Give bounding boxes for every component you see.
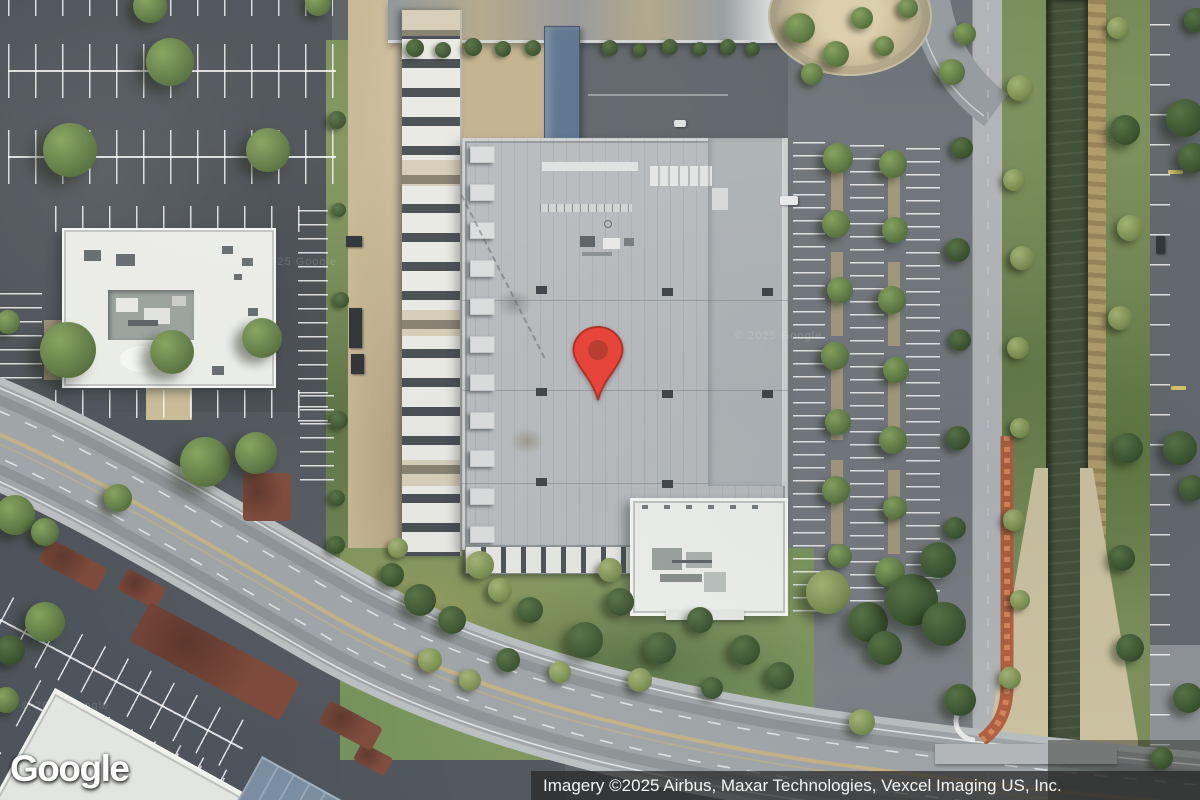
tree [882,217,908,243]
tree [602,40,618,56]
tree [459,669,481,691]
tree [849,709,875,735]
annex-building-roof [630,498,788,616]
tree [1107,17,1129,39]
tree [801,63,823,85]
roof-structure [648,166,712,186]
rooftop-pipe [128,320,158,326]
imagery-watermark: © 2025 Google [250,256,337,268]
tree [330,411,348,429]
tree [785,13,815,43]
tree [946,238,970,262]
tree [567,622,603,658]
parapet-dot [642,505,648,509]
tree [1010,418,1030,438]
roof-vent [662,390,673,398]
tree [332,203,346,217]
tree [549,661,571,683]
tree [1003,509,1025,531]
equipment-unit [672,560,712,563]
tree [922,602,966,646]
tree [944,517,966,539]
rooftop-unit [116,252,135,266]
tree [944,684,976,716]
roof-machine [624,238,634,246]
tree [1010,246,1034,270]
tree [242,318,282,358]
roof-vent [662,480,673,488]
wheel-stop [1168,170,1183,174]
roof-vent [662,288,673,296]
tree [1179,475,1200,501]
tree [466,551,494,579]
tree [823,41,849,67]
tree [1116,634,1144,662]
tree [495,41,511,57]
dumpster [349,308,362,348]
roof-stain [510,428,544,454]
tree [598,558,622,582]
parapet-dot [752,505,758,509]
equipment-unit [704,572,726,592]
tree [388,538,408,558]
tree [438,606,466,634]
tree [104,484,132,512]
attribution-text: Imagery ©2025 Airbus, Maxar Technologies… [543,776,1062,795]
parapet-dot [686,505,692,509]
rooftop-unit [222,244,233,254]
rooftop-unit [116,298,138,312]
roof-machine [580,236,595,247]
tree [920,542,956,578]
tree [525,40,541,56]
tree [1003,169,1025,191]
tree [879,150,907,178]
roof-hatch [470,146,495,163]
tree [822,210,850,238]
tree [31,518,59,546]
tree [951,137,973,159]
car [674,120,686,127]
roof-hatch [470,336,495,353]
roof-hatch [470,488,495,505]
tree [327,536,345,554]
tree [1163,431,1197,465]
roof-machine [603,238,620,249]
tree [1166,99,1200,137]
mechanical-units-west [402,10,462,556]
tree [1173,683,1200,713]
tree [40,322,96,378]
tree [825,409,851,435]
tree [806,570,850,614]
tree [939,59,965,85]
roof-vent [536,286,547,294]
tree [701,677,723,699]
tree [730,635,760,665]
tree [946,426,970,450]
tree [949,329,971,351]
tree [517,597,543,623]
tree [435,42,451,58]
tree [851,7,873,29]
tree [43,123,97,177]
tree [822,476,850,504]
map-pin-icon [570,325,626,403]
map-canvas[interactable]: © 2025 Google© 2025 Google© 2025 Google … [0,0,1200,800]
roof-catwalk [540,204,632,212]
rooftop-unit [248,306,258,316]
satellite-imagery: © 2025 Google© 2025 Google© 2025 Google [0,0,1200,800]
mulch-island [243,473,291,521]
tree [883,357,909,383]
tree [874,36,894,56]
tree [766,662,794,690]
tree [464,38,482,56]
tree [1007,337,1029,359]
tree [333,292,349,308]
tree [878,286,906,314]
roof-structure [712,188,728,210]
parapet-dot [664,505,670,509]
tree [488,578,512,602]
attribution-bar: Imagery ©2025 Airbus, Maxar Technologies… [531,771,1200,800]
roof-vent [762,288,773,296]
roof-pipe [582,252,612,256]
tree [693,42,707,56]
tree [25,602,65,642]
annex-equipment [652,548,728,600]
tree [1117,215,1143,241]
map-pin[interactable] [570,325,626,403]
equipment-unit [660,574,702,582]
tree [418,648,442,672]
tree [827,277,853,303]
dumpster [346,236,362,247]
roof-hatch [470,374,495,391]
tree [868,631,902,665]
tree [404,584,436,616]
roof-vent [604,220,612,228]
parapet-dot [708,505,714,509]
imagery-watermark: © 2025 Google [22,700,109,712]
tree [633,43,647,57]
tree [1113,433,1143,463]
tree [1110,115,1140,145]
tree [883,496,907,520]
imagery-watermark: © 2025 Google [735,330,822,342]
tree [720,39,736,55]
tree [406,39,424,57]
tree [1109,545,1135,571]
tree [1108,306,1132,330]
tree [1007,75,1033,101]
covered-walkway [544,26,580,146]
roof-hatch [470,526,495,543]
tree [329,490,345,506]
rooftop-unit [84,248,101,261]
tree [828,544,852,568]
roof-hatch [470,412,495,429]
tree [662,39,678,55]
tree [496,648,520,672]
tree [823,143,853,173]
rooftop-unit [212,364,224,375]
tree [821,342,849,370]
roof-hatch [470,184,495,201]
parapet-dot [730,505,736,509]
roof-hatch [470,450,495,467]
google-logo[interactable]: Google [10,748,128,790]
tree [180,437,230,487]
roof-hatch [470,260,495,277]
tree [606,588,634,616]
rooftop-unit [234,272,242,280]
tree [628,668,652,692]
tree [1151,747,1173,769]
tree [1010,590,1030,610]
roof-hatch [470,298,495,315]
tree [746,42,760,56]
tree [644,632,676,664]
car [1156,236,1165,254]
tree [1178,143,1200,173]
roof-stain [496,290,532,318]
roof-walkway [542,162,638,171]
roof-vent [536,478,547,486]
tree [954,23,976,45]
dumpster [351,354,364,374]
tree [879,426,907,454]
wheel-stop [1171,386,1186,390]
tree [380,563,404,587]
tree [150,330,194,374]
tree [999,667,1021,689]
tree [146,38,194,86]
roof-vent [762,390,773,398]
tree [328,111,346,129]
tree [235,432,277,474]
rooftop-unit [172,296,186,306]
tree [246,128,290,172]
car [780,196,798,205]
tree [687,607,713,633]
equipment-unit [652,548,682,570]
roof-vent [536,388,547,396]
